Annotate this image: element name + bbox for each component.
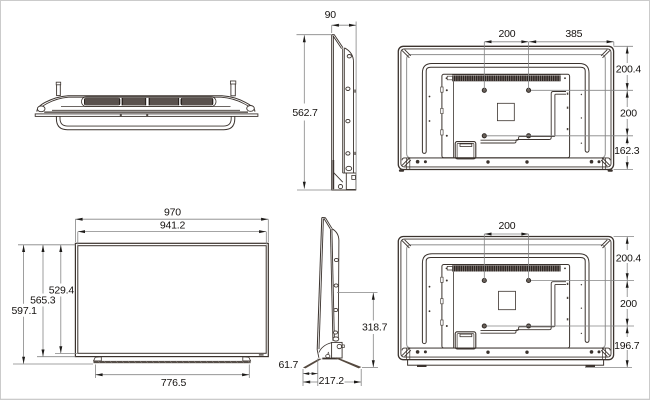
svg-text:196.7: 196.7 <box>614 340 640 352</box>
svg-text:90: 90 <box>325 9 337 21</box>
svg-text:776.5: 776.5 <box>161 377 187 389</box>
svg-text:385: 385 <box>565 28 582 40</box>
svg-text:200: 200 <box>499 28 516 40</box>
svg-text:597.1: 597.1 <box>12 305 38 317</box>
svg-text:318.7: 318.7 <box>362 322 388 334</box>
svg-text:217.2: 217.2 <box>319 375 345 387</box>
svg-text:61.7: 61.7 <box>278 359 298 371</box>
svg-text:162.3: 162.3 <box>614 145 640 157</box>
svg-text:200: 200 <box>499 220 516 232</box>
svg-text:200.4: 200.4 <box>616 253 642 265</box>
svg-text:200.4: 200.4 <box>616 63 642 75</box>
svg-text:562.7: 562.7 <box>292 107 318 119</box>
svg-text:200: 200 <box>620 298 637 310</box>
svg-text:200: 200 <box>620 108 637 120</box>
svg-text:970: 970 <box>164 206 181 218</box>
svg-text:941.2: 941.2 <box>160 219 186 231</box>
